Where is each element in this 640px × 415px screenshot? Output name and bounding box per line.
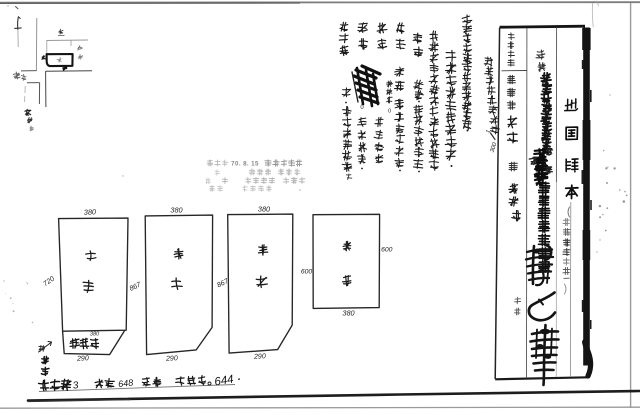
svg-text:600: 600: [381, 247, 393, 254]
svg-text:0: 0: [388, 109, 391, 115]
svg-text:290: 290: [165, 355, 178, 363]
svg-text:648: 648: [118, 378, 134, 390]
svg-text:380: 380: [90, 332, 100, 338]
svg-text:600: 600: [301, 269, 313, 276]
svg-text:380: 380: [342, 309, 354, 318]
svg-text:380: 380: [170, 206, 182, 215]
svg-text:290: 290: [76, 355, 89, 363]
svg-text:70. 8. 15: 70. 8. 15: [231, 161, 259, 168]
svg-text:380: 380: [84, 207, 96, 216]
svg-text:380: 380: [258, 205, 270, 214]
svg-text:290: 290: [253, 353, 266, 361]
